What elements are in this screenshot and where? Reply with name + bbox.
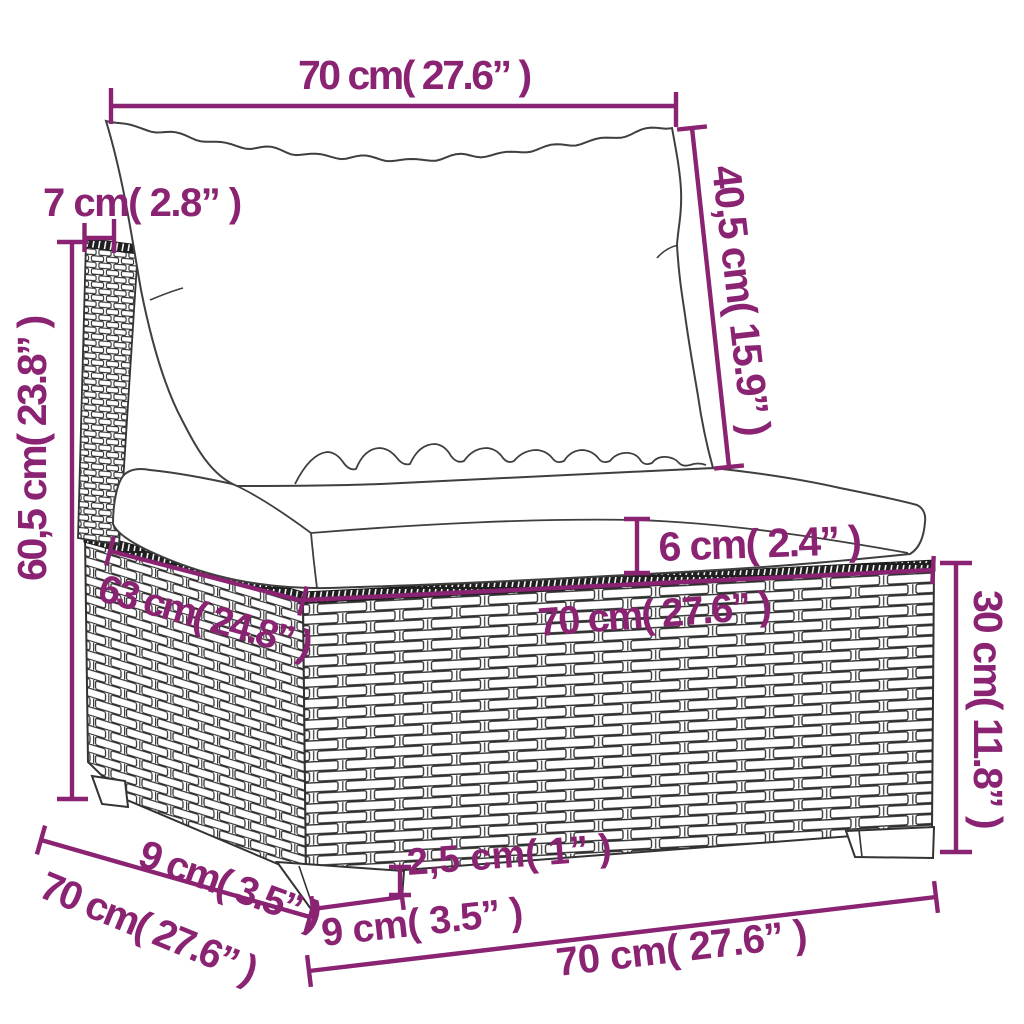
- svg-text:30 cm( 11.8” ): 30 cm( 11.8” ): [965, 590, 1011, 828]
- svg-text:6 cm( 2.4” ): 6 cm( 2.4” ): [658, 517, 861, 570]
- svg-text:7 cm( 2.8” ): 7 cm( 2.8” ): [43, 181, 241, 225]
- svg-text:60,5 cm( 23.8” ): 60,5 cm( 23.8” ): [9, 316, 55, 581]
- svg-text:70 cm( 27.6” ): 70 cm( 27.6” ): [298, 52, 530, 98]
